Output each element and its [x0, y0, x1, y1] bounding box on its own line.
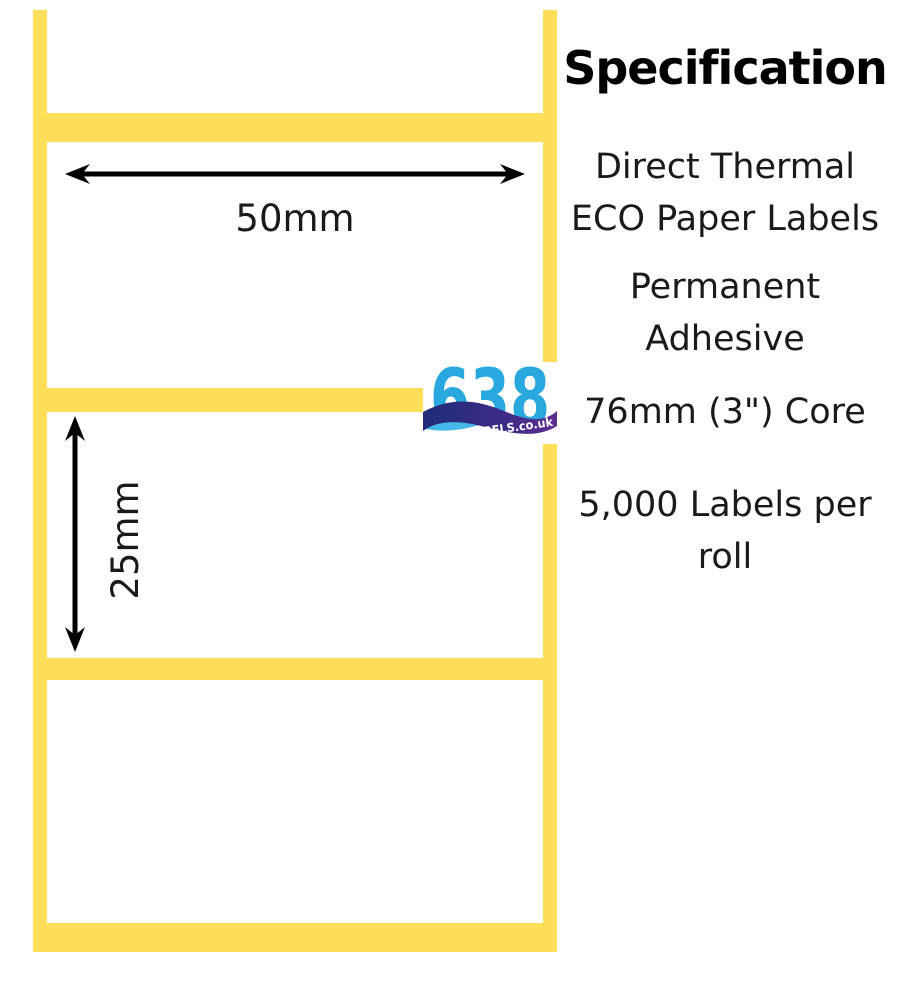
- spec-item-core: 76mm (3") Core: [560, 386, 890, 438]
- spec-item-quantity: 5,000 Labels per roll: [560, 479, 890, 583]
- width-dimension-label: 50mm: [195, 197, 395, 241]
- spec-item-material: Direct Thermal ECO Paper Labels: [560, 141, 890, 245]
- width-arrow-icon: [63, 162, 527, 186]
- product-spec-image: 50mm 25mm 638 LABELS.co.uk Specification…: [0, 0, 900, 1000]
- label-blank-bottom: [47, 680, 543, 923]
- spec-title: Specification: [560, 40, 890, 96]
- height-arrow-icon: [63, 414, 87, 654]
- label-blank-top: [47, 10, 543, 113]
- brand-logo: 638 LABELS.co.uk: [423, 362, 557, 444]
- height-dimension-label: 25mm: [106, 460, 146, 620]
- spec-item-adhesive: Permanent Adhesive: [560, 261, 890, 365]
- spec-panel: Specification Direct Thermal ECO Paper L…: [560, 40, 890, 583]
